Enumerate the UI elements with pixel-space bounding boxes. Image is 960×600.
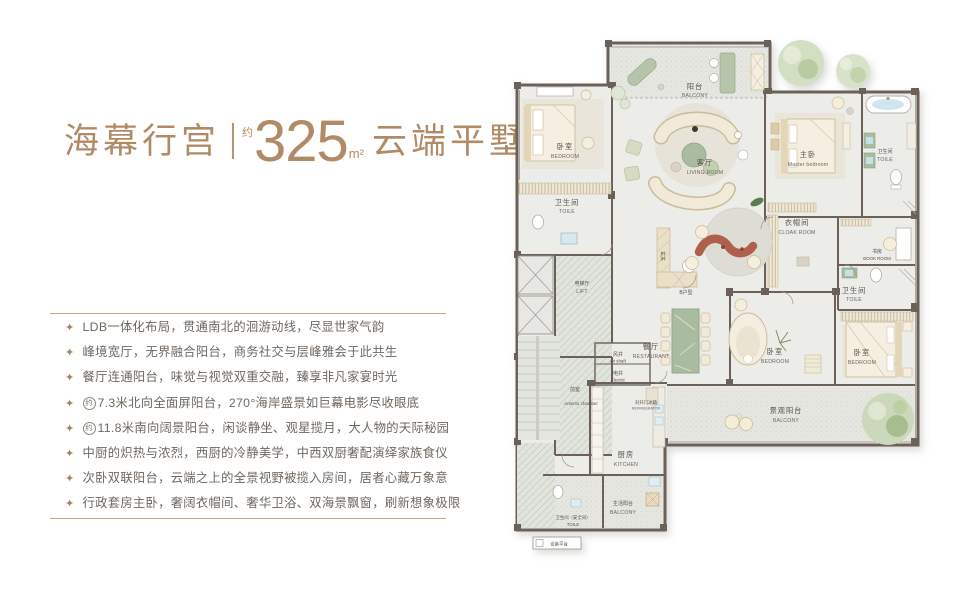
- sparkle-icon: ✦: [65, 417, 75, 441]
- approx-circle-icon: 约: [83, 422, 96, 435]
- room-label-toilet-safety-en: TOILE: [567, 522, 580, 527]
- stairs: [518, 336, 560, 440]
- room-label-service-balcony-en: BALCONY: [610, 510, 637, 516]
- project-name: 海幕行宫: [64, 120, 220, 164]
- room-label-anterior-cn: 前室: [570, 386, 580, 393]
- room-label-master-toilet-en: TOILE: [877, 157, 893, 163]
- feature-item: ✦约11.8米南向阔景阳台，闲谈静坐、观星揽月，大人物的天际秘园: [50, 416, 446, 441]
- core-floor: [517, 443, 555, 528]
- room-label-entry-cn: 玄关: [659, 251, 666, 261]
- sparkle-icon: ✦: [65, 492, 75, 516]
- feature-text: 峰境宽厅，无界融合阳台，商务社交与层峰雅会于此共生: [83, 340, 398, 364]
- room-label-toilet-e-en: TOILE: [846, 297, 862, 303]
- room-label-service-balcony-cn: 生活阳台: [613, 500, 633, 507]
- tree-northeast-1: [778, 40, 824, 86]
- approx-circle-icon: 约: [83, 397, 96, 410]
- sparkle-icon: ✦: [65, 316, 75, 340]
- feature-text: 中厨的炽热与浓烈，西厨的冷静美学，中西双厨奢配演绎家族食仪: [83, 441, 448, 465]
- refrigerator-label-cn: 对开门冰箱: [635, 399, 658, 406]
- room-label-bedroom-mid-cn: 卧室: [767, 347, 783, 356]
- room-label-master-toilet-cn: 卫生间: [877, 148, 892, 155]
- bedroom-southeast-furniture: [842, 322, 912, 377]
- room-label-bedroom-nw-cn: 卧室: [557, 142, 573, 151]
- feature-text: LDB一体化布局，贯通南北的洄游动线，尽显世家气韵: [83, 315, 385, 339]
- feature-item: ✦峰境宽厅，无界融合阳台，商务社交与层峰雅会于此共生: [50, 340, 446, 365]
- feature-text: 次卧双联阳台，云端之上的全景视野被揽入房间，居者心藏万象意: [83, 466, 448, 490]
- tree-northeast-2: [836, 54, 870, 88]
- room-label-bedroom-se-en: BEDROOM: [848, 360, 876, 366]
- room-label-lift-en: LIFT: [576, 289, 588, 295]
- floorplan-drawing: 阳台 BALCONY 客厅 LIVING ROOM 卧室 BEDROOM 卫生间…: [505, 25, 960, 570]
- room-label-dining-cn: 餐厅: [643, 342, 659, 351]
- room-label-cloak-en: CLOAK ROOM: [778, 230, 815, 236]
- title-divider: [232, 123, 234, 159]
- feature-item: ✦次卧双联阳台，云端之上的全景视野被揽入房间，居者心藏万象意: [50, 466, 446, 491]
- feature-item: ✦约7.3米北向全面屏阳台，270°海岸盛景如巨幕电影尽收眼底: [50, 391, 446, 416]
- area-figure: 约 325 m²: [238, 120, 372, 164]
- room-label-electric-en: Electric: [611, 378, 626, 383]
- unit-b-label: B户型: [679, 289, 692, 296]
- room-label-book-en: BOOK ROOM: [863, 256, 891, 261]
- area-approx-label: 约: [242, 124, 253, 140]
- room-label-airshaft-en: air shaft: [610, 359, 626, 364]
- room-label-airshaft-cn: 风井: [613, 351, 623, 358]
- room-label-master-cn: 主卧: [800, 150, 816, 159]
- room-label-electric-cn: 电井: [613, 370, 623, 377]
- feature-list: ✦LDB一体化布局，贯通南北的洄游动线，尽显世家气韵 ✦峰境宽厅，无界融合阳台，…: [50, 313, 446, 519]
- feature-item: ✦行政套房主卧，奢阔衣帽间、奢华卫浴、双海景飘窗，刷新想象极限: [50, 491, 446, 516]
- cloak-room-furniture: [797, 257, 809, 266]
- area-number: 325: [254, 120, 348, 164]
- feature-text: 餐厅连通阳台，味觉与视觉双重交融，臻享非凡家宴时光: [83, 365, 398, 389]
- sparkle-icon: ✦: [65, 442, 75, 466]
- floorplan: 阳台 BALCONY 客厅 LIVING ROOM 卧室 BEDROOM 卫生间…: [505, 25, 960, 570]
- sparkle-icon: ✦: [65, 392, 75, 416]
- feature-item: ✦餐厅连通阳台，味觉与视觉双重交融，臻享非凡家宴时光: [50, 365, 446, 390]
- room-label-bedroom-se-cn: 卧室: [854, 348, 870, 357]
- refrigerator-label-en: REFRIGERATOR: [632, 407, 661, 411]
- room-label-kitchen-cn: 厨房: [618, 450, 634, 459]
- room-label-balcony-north-en: BALCONY: [682, 93, 709, 99]
- sparkle-icon: ✦: [65, 467, 75, 491]
- room-label-toilet-e-cn: 卫生间: [842, 286, 867, 295]
- feature-text: 7.3米北向全面屏阳台，270°海岸盛景如巨幕电影尽收眼底: [98, 391, 420, 415]
- feature-text: 行政套房主卧，奢阔衣帽间、奢华卫浴、双海景飘窗，刷新想象极限: [83, 491, 461, 515]
- page-title: 海幕行宫 约 325 m² 云端平墅: [64, 120, 528, 164]
- room-label-cloak-cn: 衣帽间: [785, 218, 810, 227]
- sparkle-icon: ✦: [65, 366, 75, 390]
- room-label-bedroom-nw-en: BEDROOM: [551, 154, 579, 160]
- area-unit: m²: [349, 146, 364, 161]
- room-label-lift-cn: 电梯厅: [574, 280, 589, 287]
- feature-item: ✦LDB一体化布局，贯通南北的洄游动线，尽显世家气韵: [50, 315, 446, 340]
- room-label-balcony-north-cn: 阳台: [687, 82, 703, 91]
- sparkle-icon: ✦: [65, 341, 75, 365]
- room-label-kitchen-en: KITCHEN: [614, 462, 638, 468]
- room-label-living-cn: 客厅: [697, 158, 713, 167]
- poster-page: 海幕行宫 约 325 m² 云端平墅 ✦LDB一体化布局，贯通南北的洄游动线，尽…: [0, 0, 960, 600]
- room-label-view-balcony-cn: 景观阳台: [770, 406, 803, 415]
- room-label-toilet-safety-cn: 卫生间（安全间）: [555, 514, 590, 521]
- room-label-view-balcony-en: BALCONY: [773, 418, 800, 424]
- room-label-dining-en: RESTAURANT: [633, 354, 670, 360]
- equipment-platform-label: 设备平台: [550, 541, 568, 548]
- room-label-master-en: Master bedroom: [788, 162, 829, 168]
- anterior-floor: [555, 357, 612, 455]
- room-label-toilet-nw-cn: 卫生间: [555, 198, 580, 207]
- room-label-book-cn: 书房: [872, 248, 882, 255]
- room-label-bedroom-mid-en: BEDROOM: [761, 359, 789, 365]
- lift-hall-floor: [555, 255, 612, 357]
- feature-item: ✦中厨的炽热与浓烈，西厨的冷静美学，中西双厨奢配演绎家族食仪: [50, 441, 446, 466]
- room-label-toilet-nw-en: TOILE: [559, 209, 575, 215]
- dining-furniture: [661, 309, 710, 373]
- feature-text: 11.8米南向阔景阳台，闲谈静坐、观星揽月，大人物的天际秘园: [98, 416, 450, 440]
- room-label-anterior-en: Anterior chamber: [564, 401, 598, 406]
- room-label-living-en: LIVING ROOM: [687, 170, 724, 176]
